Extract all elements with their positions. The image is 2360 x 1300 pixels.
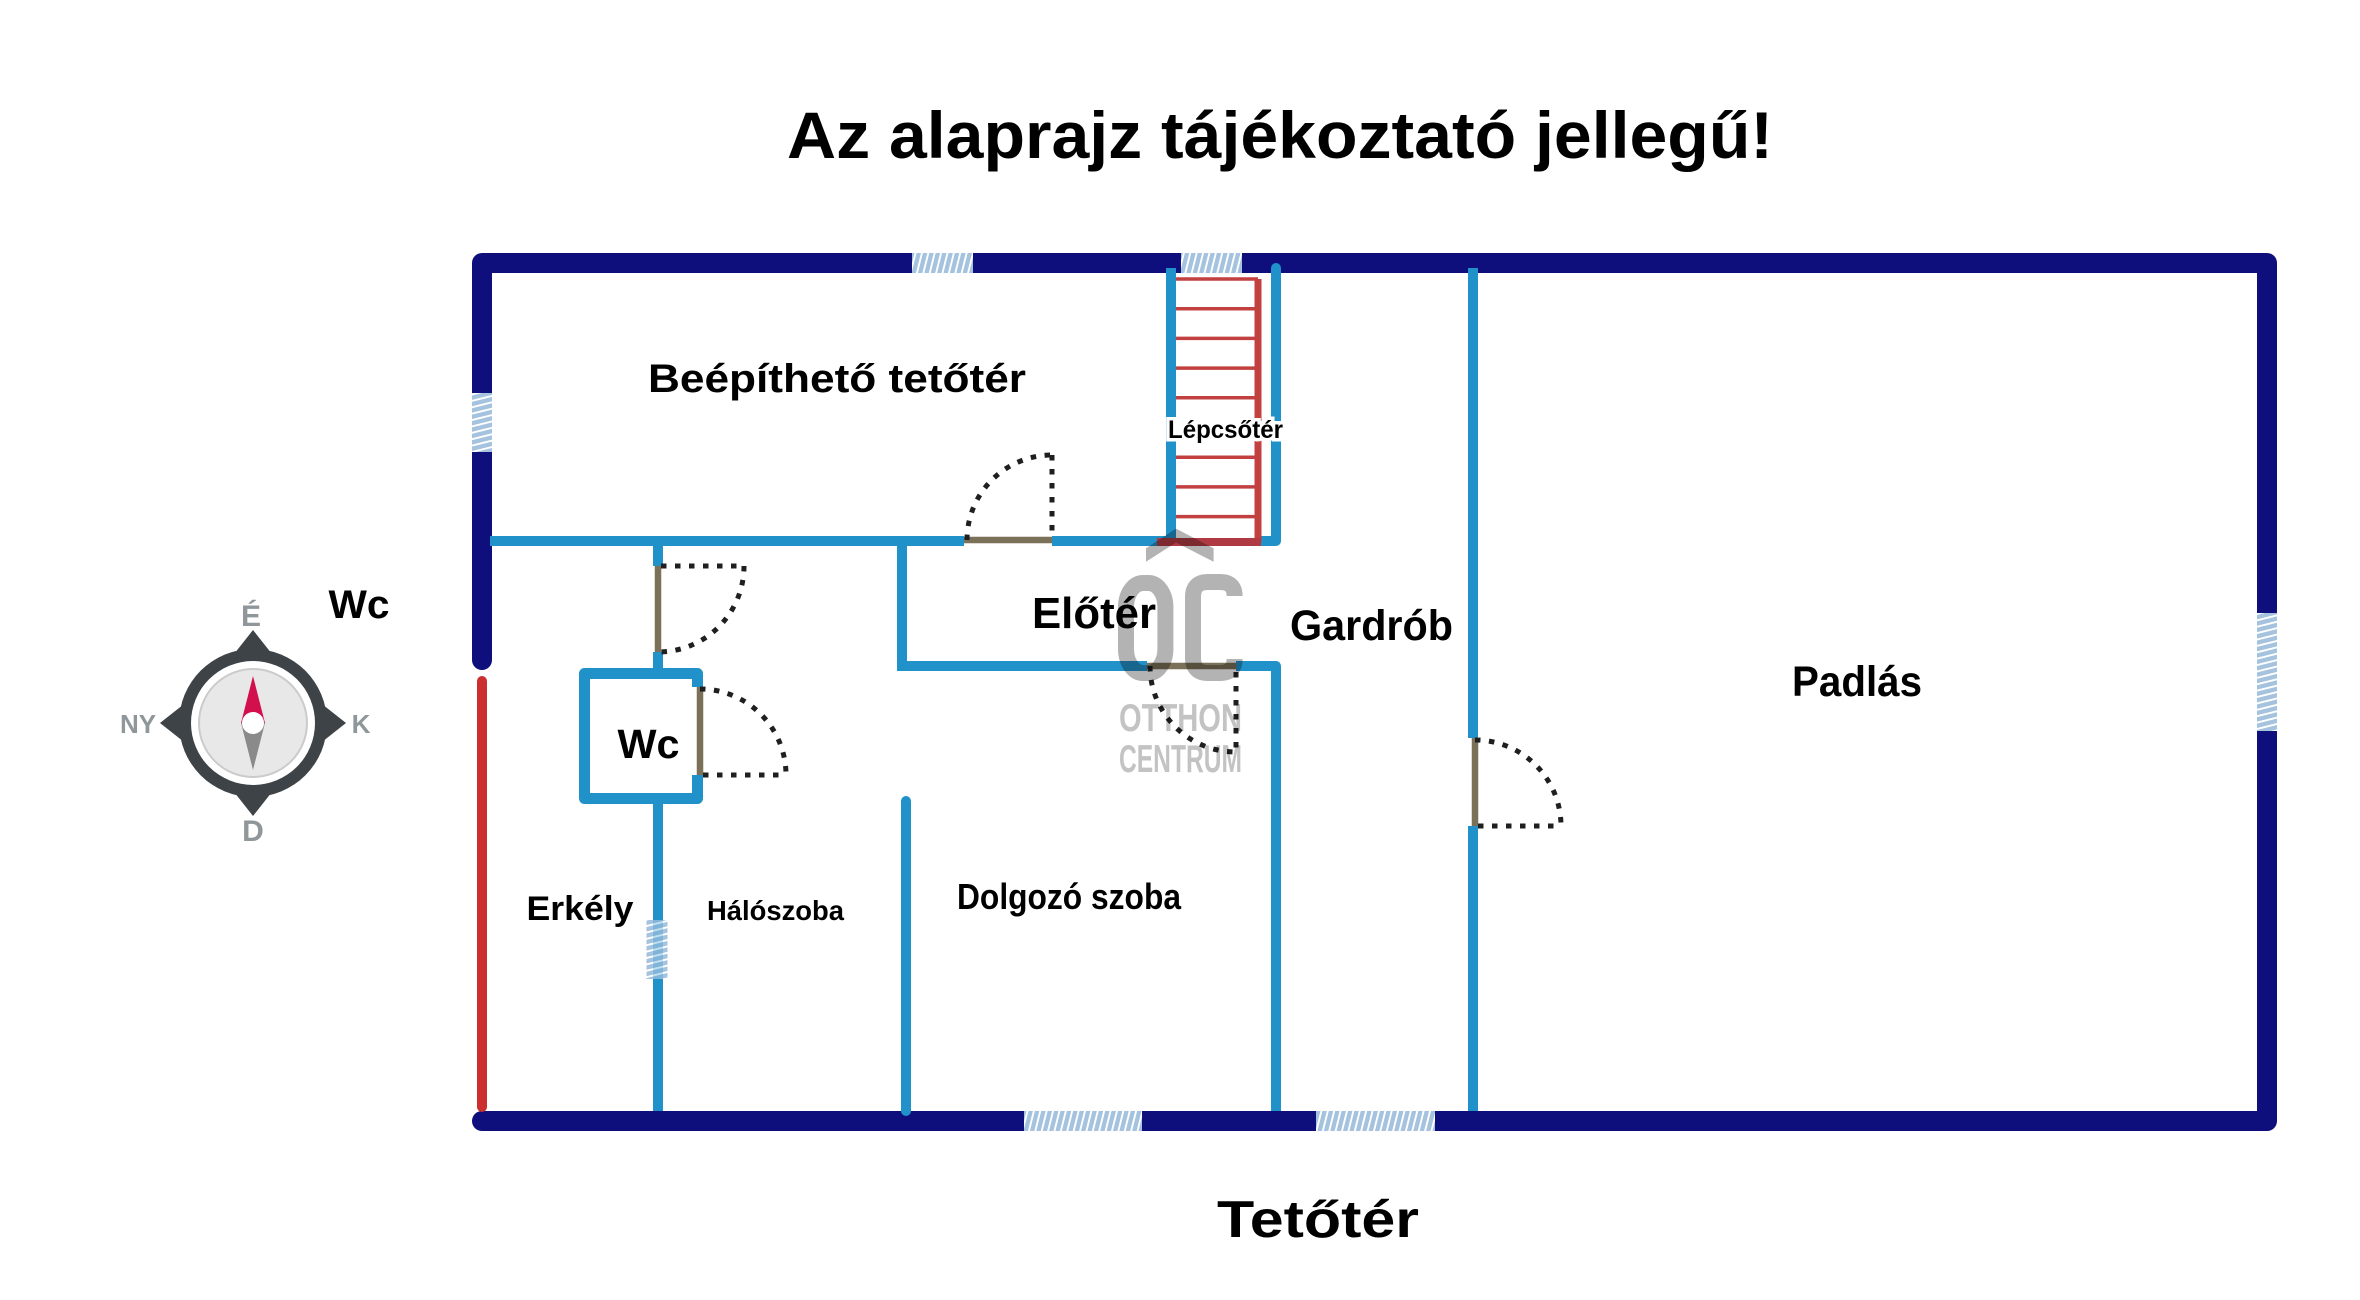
svg-text:Hálószoba: Hálószoba <box>707 895 844 926</box>
svg-text:OTTHON: OTTHON <box>1119 697 1242 740</box>
svg-text:Az alaprajz tájékoztató jelleg: Az alaprajz tájékoztató jellegű! <box>787 98 1773 172</box>
svg-text:Wc: Wc <box>329 583 390 627</box>
svg-text:É: É <box>241 599 261 633</box>
svg-text:Tetőtér: Tetőtér <box>1217 1191 1419 1249</box>
svg-text:CENTRUM: CENTRUM <box>1119 738 1242 781</box>
svg-text:NY: NY <box>120 709 156 739</box>
svg-text:D: D <box>242 815 264 848</box>
svg-text:Dolgozó szoba: Dolgozó szoba <box>957 876 1182 917</box>
svg-text:Gardrób: Gardrób <box>1290 602 1453 650</box>
svg-text:Erkély: Erkély <box>527 890 634 928</box>
svg-text:Előtér: Előtér <box>1032 589 1156 638</box>
svg-text:K: K <box>352 709 371 739</box>
svg-text:Beépíthető tetőtér: Beépíthető tetőtér <box>648 357 1026 401</box>
svg-text:Lépcsőtér: Lépcsőtér <box>1168 416 1283 444</box>
svg-text:Wc: Wc <box>618 721 680 767</box>
svg-text:Padlás: Padlás <box>1792 658 1922 706</box>
